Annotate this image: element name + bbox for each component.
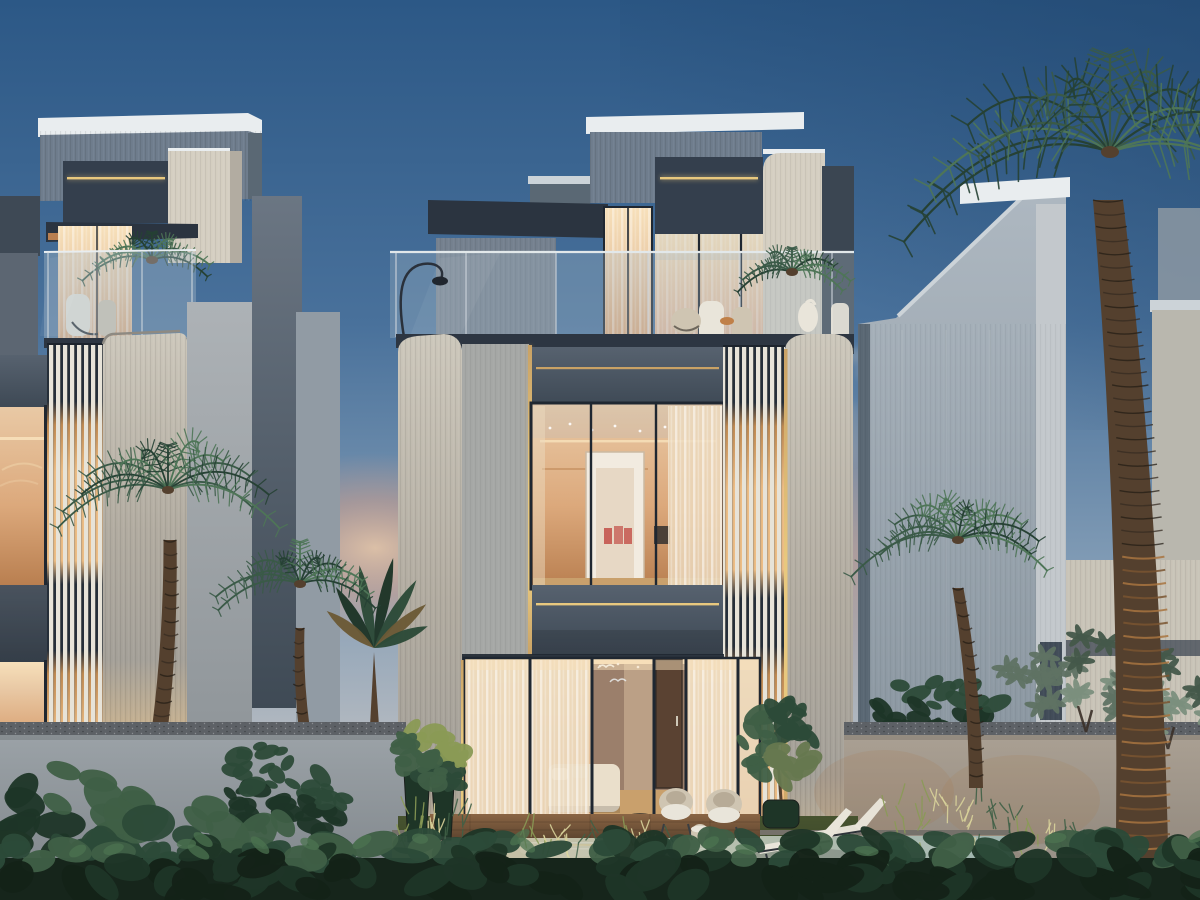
left-villa-lit-window bbox=[0, 407, 46, 585]
villa-dusk-render bbox=[0, 0, 1200, 900]
wood-door bbox=[656, 660, 682, 788]
gold-light-line bbox=[536, 367, 719, 369]
center-villa-canopy bbox=[428, 200, 608, 238]
olive-pot bbox=[763, 800, 799, 828]
left-villa-dark-box bbox=[63, 161, 168, 223]
interior-art bbox=[604, 528, 612, 544]
left-villa-louver-screen bbox=[47, 343, 103, 732]
gold-light-line bbox=[67, 177, 165, 179]
bird-vase bbox=[798, 302, 818, 332]
left-villa-ground-glass bbox=[0, 662, 46, 728]
gold-light-line bbox=[536, 603, 719, 605]
render-canvas bbox=[0, 0, 1200, 900]
gold-light-line bbox=[660, 177, 758, 179]
middle-floor-window bbox=[531, 403, 724, 589]
arc-lamp-shade bbox=[432, 277, 448, 286]
center-villa-dark-box bbox=[655, 157, 763, 234]
roof-terrace bbox=[390, 245, 855, 342]
left-villa-dark-fin bbox=[252, 196, 302, 708]
